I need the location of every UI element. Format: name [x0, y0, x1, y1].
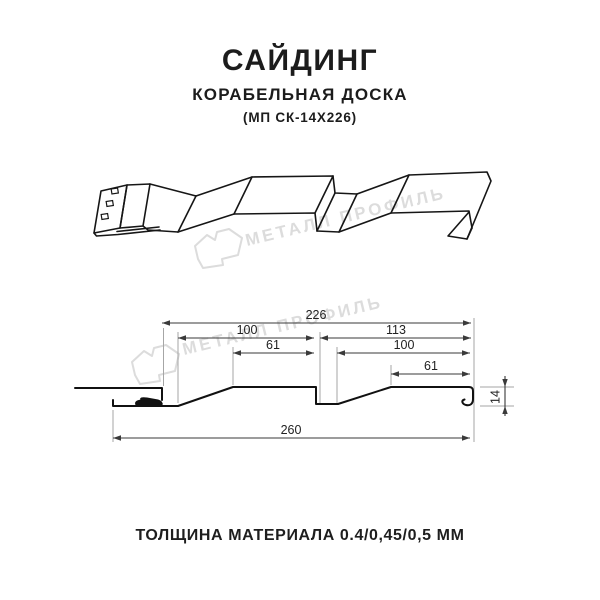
material-thickness-note: ТОЛЩИНА МАТЕРИАЛА 0.4/0,45/0,5 ММ — [0, 527, 600, 545]
dim-label: 61 — [424, 359, 438, 373]
brand-logo-icon — [195, 229, 242, 268]
dim-226: 226 — [162, 308, 471, 326]
nail-hole-icon — [101, 214, 108, 220]
diagram-canvas: МЕТАЛЛ ПРОФИЛЬ МЕТАЛЛ ПРОФИЛЬ — [0, 0, 600, 600]
section-profile-outline — [113, 387, 473, 406]
watermark-3d: МЕТАЛЛ ПРОФИЛЬ — [195, 183, 448, 268]
dim-label: 61 — [266, 338, 280, 352]
lock-band — [120, 184, 150, 228]
shelf-edges — [143, 184, 196, 232]
dim-14: 14 — [489, 376, 508, 416]
nail-hole-icon — [111, 188, 118, 194]
brand-logo-icon — [132, 345, 179, 384]
brand-watermark-text: МЕТАЛЛ ПРОФИЛЬ — [180, 292, 384, 358]
dim-100-right: 100 — [337, 338, 470, 356]
dim-label: 100 — [394, 338, 415, 352]
dim-label: 100 — [237, 323, 258, 337]
section-lock-seam — [136, 398, 163, 405]
dim-label: 260 — [281, 423, 302, 437]
nail-strip-face — [94, 185, 127, 233]
dim-61-right: 61 — [391, 359, 470, 377]
dim-label: 226 — [306, 308, 327, 322]
dim-260: 260 — [113, 423, 470, 441]
extension-lines — [113, 318, 514, 442]
nail-hole-icon — [106, 201, 113, 207]
far-outline — [196, 172, 491, 239]
right-end-flange — [448, 212, 472, 239]
dim-label: 113 — [386, 323, 406, 337]
dim-label: 14 — [489, 390, 503, 404]
